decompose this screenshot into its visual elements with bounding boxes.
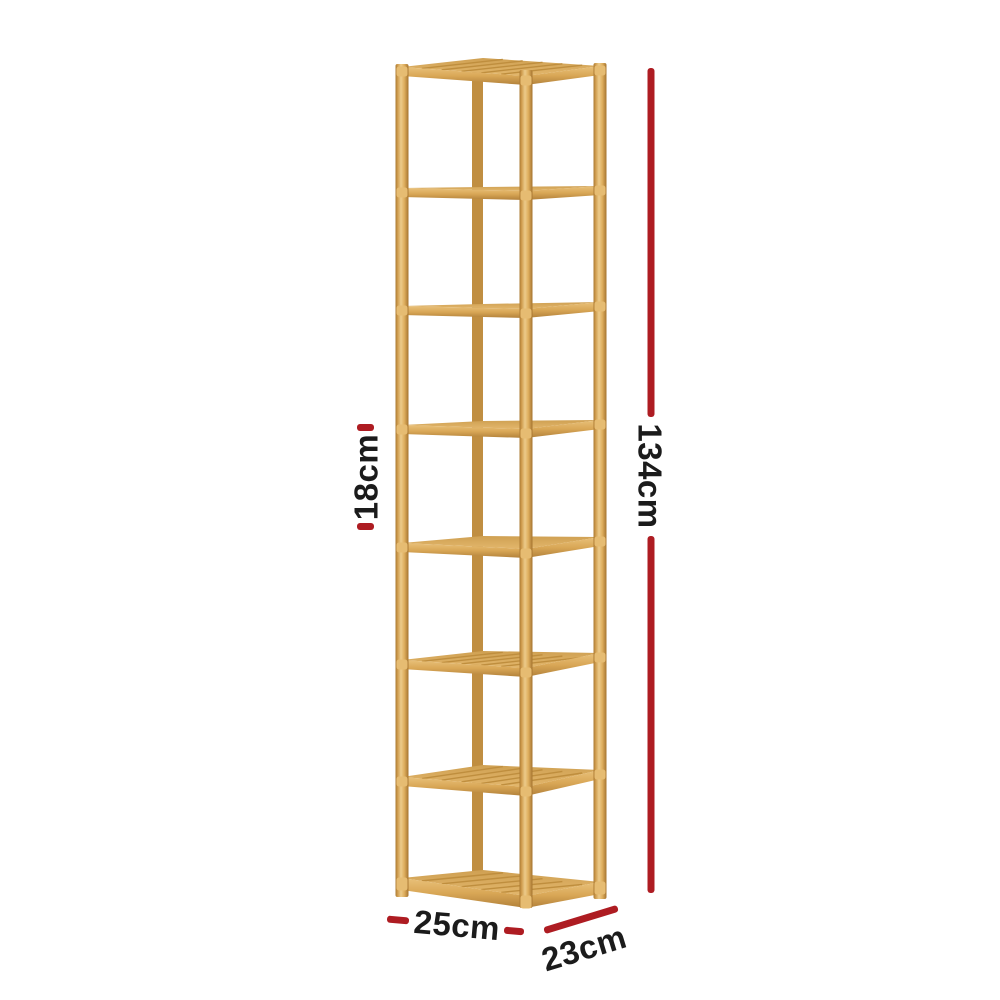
rail-joint [521,429,532,439]
rail-joint [595,882,606,895]
shelf-tier [402,651,600,677]
shelf-tier [402,302,600,318]
tier-spacing-dimension: 18cm [348,424,385,530]
shelf-tier [402,536,600,558]
depth-dimension: 23cm [537,905,630,978]
rail-joint [595,420,606,430]
rail-joint [521,309,532,319]
rail-joint [521,787,532,797]
width-tick-left [387,916,410,925]
dimension-diagram-canvas: 134cm 18cm 25cm 23cm [0,0,1000,1000]
rail-joint [397,660,408,670]
tier-spacing-tick-top [357,424,374,431]
rail-joint [397,878,408,891]
rail-joint [595,770,606,780]
rail-joint [397,543,408,553]
height-dimension-line-top [648,68,655,417]
rail-joint [521,76,532,86]
rail-joint [397,67,408,77]
shelf-tier [402,765,600,796]
rail-joint [521,191,532,201]
rail-joint [595,302,606,312]
shelf-tier [402,58,600,85]
rail-joint [397,306,408,316]
rail-joint [521,668,532,678]
rail-joint [521,896,532,909]
height-dimension: 134cm [632,68,669,893]
rail-joint [595,186,606,196]
shelf-tier [402,186,600,200]
width-tick-right [504,927,525,936]
rail-joint [397,777,408,787]
shelf-tier [402,870,600,908]
rail-joint [521,549,532,559]
height-dimension-line-bottom [648,536,655,893]
shelf-illustration [396,58,607,909]
tier-spacing-tick-bottom [357,523,374,530]
rail-joint [595,66,606,76]
rail-joint [397,188,408,198]
width-dimension-label: 25cm [412,903,501,947]
height-dimension-label: 134cm [632,423,669,528]
product-dimension-image: 134cm 18cm 25cm 23cm [0,0,1000,1000]
width-dimension: 25cm [387,903,525,947]
shelf-tier [402,420,600,438]
tier-spacing-label: 18cm [348,434,385,520]
rail-joint [595,653,606,663]
rail-joint [397,425,408,435]
rail-joint [595,537,606,547]
